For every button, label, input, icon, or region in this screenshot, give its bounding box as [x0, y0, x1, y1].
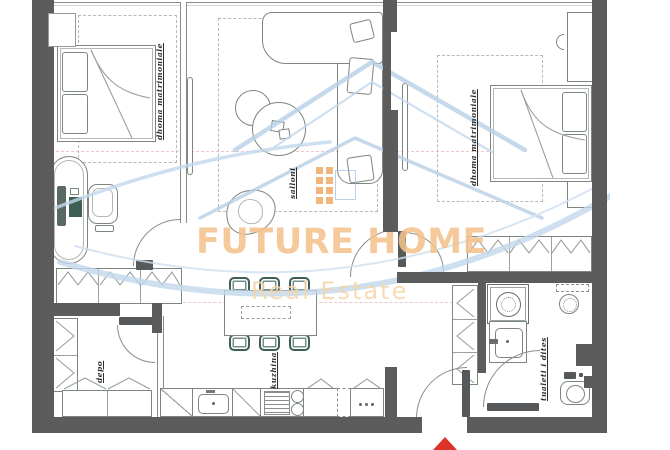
- partition-wall: [180, 2, 187, 223]
- stove-unit: [260, 388, 304, 417]
- wardrobe-row: [62, 390, 152, 417]
- toilet-bowl: [566, 385, 585, 403]
- oven-grill: [264, 391, 290, 415]
- outer-wall-left: [32, 0, 54, 433]
- shower-drain-inner: [563, 298, 577, 312]
- bed: [57, 45, 156, 142]
- outer-wall-right: [592, 0, 607, 433]
- floor-plan-canvas: FUTURE HOME Real Estate dhoma matrimonia…: [0, 0, 670, 450]
- handle-dot: [359, 403, 362, 406]
- cabinet-flap-mark: [352, 377, 382, 389]
- wall-center: [383, 110, 398, 232]
- wall-center-thin: [383, 30, 391, 112]
- blanket-fold: [58, 46, 157, 143]
- toilet-valve-dot: [579, 373, 583, 377]
- handle-dot: [371, 403, 374, 406]
- window-line: [54, 5, 383, 6]
- dining-chair: [259, 334, 280, 351]
- kitchen-cabinet: [232, 388, 261, 417]
- room-label-kitchen: kuzhina: [270, 352, 278, 389]
- bed: [490, 85, 592, 182]
- door-leaf: [398, 231, 406, 267]
- handle-dot: [365, 403, 368, 406]
- toilet-flush-valve: [564, 372, 576, 379]
- shower-drain: [559, 294, 579, 314]
- wall-niche: [48, 13, 76, 47]
- chair-base: [95, 225, 114, 232]
- kitchen-sink-unit: [192, 388, 233, 417]
- wall-storage-pier: [152, 303, 162, 333]
- door-arc: [404, 232, 444, 272]
- chair-seat: [92, 188, 113, 217]
- door-arc: [416, 367, 467, 418]
- desk-item: [70, 188, 79, 195]
- wall-bathroom-pier: [576, 344, 592, 366]
- room-label-bedroom-right: dhoma matrimoniale: [470, 89, 478, 186]
- wall-storage-top: [44, 303, 120, 316]
- table-runner: [241, 306, 291, 319]
- table-book: [278, 128, 290, 139]
- towel-rail: [556, 284, 589, 292]
- desk: [50, 156, 88, 264]
- wall-bathroom-pier-small: [584, 376, 592, 388]
- entrance-arrow: [433, 437, 457, 450]
- blanket-fold: [491, 86, 593, 183]
- door-arc: [350, 229, 398, 277]
- door-arc: [117, 325, 155, 363]
- nightstand: [567, 12, 593, 82]
- room-label-bedroom-left: dhoma matrimoniale: [156, 43, 164, 140]
- side-table-inner: [238, 199, 264, 225]
- door-leaf: [462, 370, 470, 417]
- window-line: [54, 2, 383, 3]
- window-line: [397, 2, 592, 3]
- dining-chair: [289, 334, 310, 351]
- kitchen-cabinet: [350, 388, 384, 417]
- wardrobe-hanger-marks: [467, 236, 592, 256]
- outer-wall-bottom-left: [32, 417, 422, 433]
- tv-panel: [187, 77, 193, 175]
- sofa-pillow: [346, 57, 374, 95]
- window-line: [397, 5, 592, 6]
- door-leaf: [119, 317, 154, 325]
- sink-drain: [506, 340, 509, 343]
- wall-bathroom-left: [478, 283, 486, 373]
- washer-drum-inner: [501, 297, 516, 312]
- wall-hall-horizontal: [397, 272, 468, 283]
- room-label-living: salloni: [289, 167, 297, 199]
- door-arc: [133, 219, 180, 266]
- kitchen-cabinet: [303, 388, 338, 417]
- wardrobe-hanger-marks: [56, 268, 182, 288]
- office-chair: [88, 184, 118, 224]
- room-label-storage: depo: [96, 361, 104, 383]
- room-label-toilet: tualeti i dites: [540, 337, 548, 401]
- door-leaf: [487, 403, 539, 411]
- door-leaf: [136, 260, 153, 270]
- dining-chair: [229, 334, 250, 351]
- wardrobe-hanger-marks: [62, 376, 152, 391]
- sink-faucet: [489, 339, 498, 344]
- sofa-pillow: [346, 154, 374, 183]
- wardrobe-divider: [107, 391, 108, 416]
- wall-closet-right: [467, 272, 592, 283]
- coffee-table-large: [252, 102, 306, 156]
- tv-panel: [402, 83, 408, 171]
- wall-center-bottom-stub: [385, 367, 397, 417]
- desk-tray: [57, 186, 66, 226]
- sink-drain: [212, 402, 215, 405]
- washing-machine: [487, 284, 529, 324]
- cabinet-flap-mark: [306, 377, 335, 389]
- kitchen-cabinet: [160, 388, 193, 417]
- sink-faucet: [206, 390, 215, 393]
- outer-wall-bottom-right: [467, 417, 607, 433]
- dishwasher: [337, 388, 351, 417]
- monitor: [69, 197, 82, 217]
- dining-table: [224, 290, 317, 336]
- wall-center-top-stub: [383, 0, 397, 32]
